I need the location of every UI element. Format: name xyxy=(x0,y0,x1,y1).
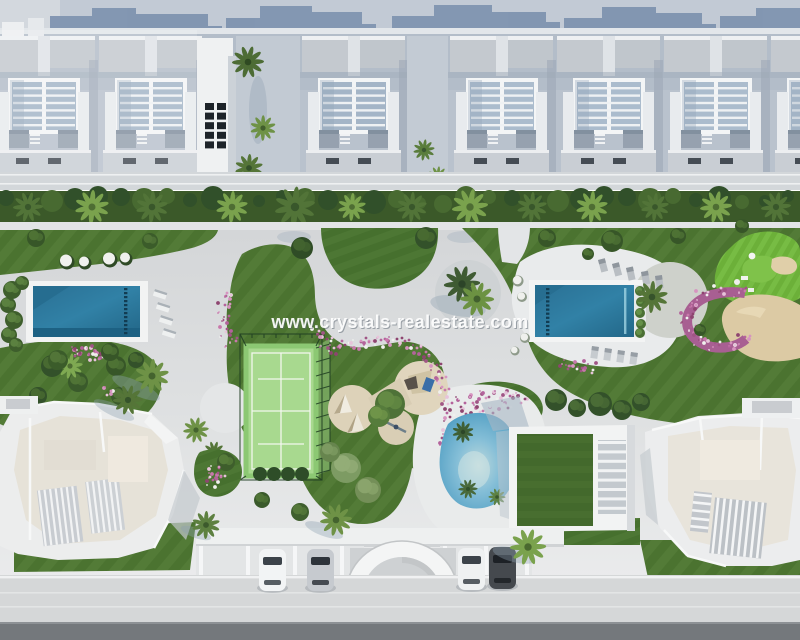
svg-text:www.crystals-realestate.com: www.crystals-realestate.com xyxy=(270,312,528,332)
